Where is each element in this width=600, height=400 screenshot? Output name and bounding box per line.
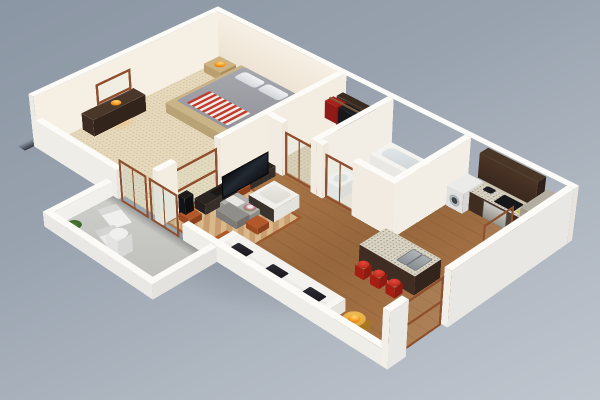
floor-plan: [28, 56, 572, 374]
render-scene: [0, 0, 600, 400]
door-frame-balcony-a-stile: [132, 169, 136, 208]
washer-door: [449, 193, 460, 209]
door-frame-bathroom-stile: [339, 163, 341, 203]
door-frame-entry-stile: [405, 301, 440, 327]
lamp-left: [212, 60, 228, 68]
door-frame-balcony-b-stile: [162, 188, 166, 227]
apartment-render: 3D isometric cutaway render of a one-bed…: [0, 0, 600, 400]
door-frame-closet-stile: [298, 141, 300, 180]
